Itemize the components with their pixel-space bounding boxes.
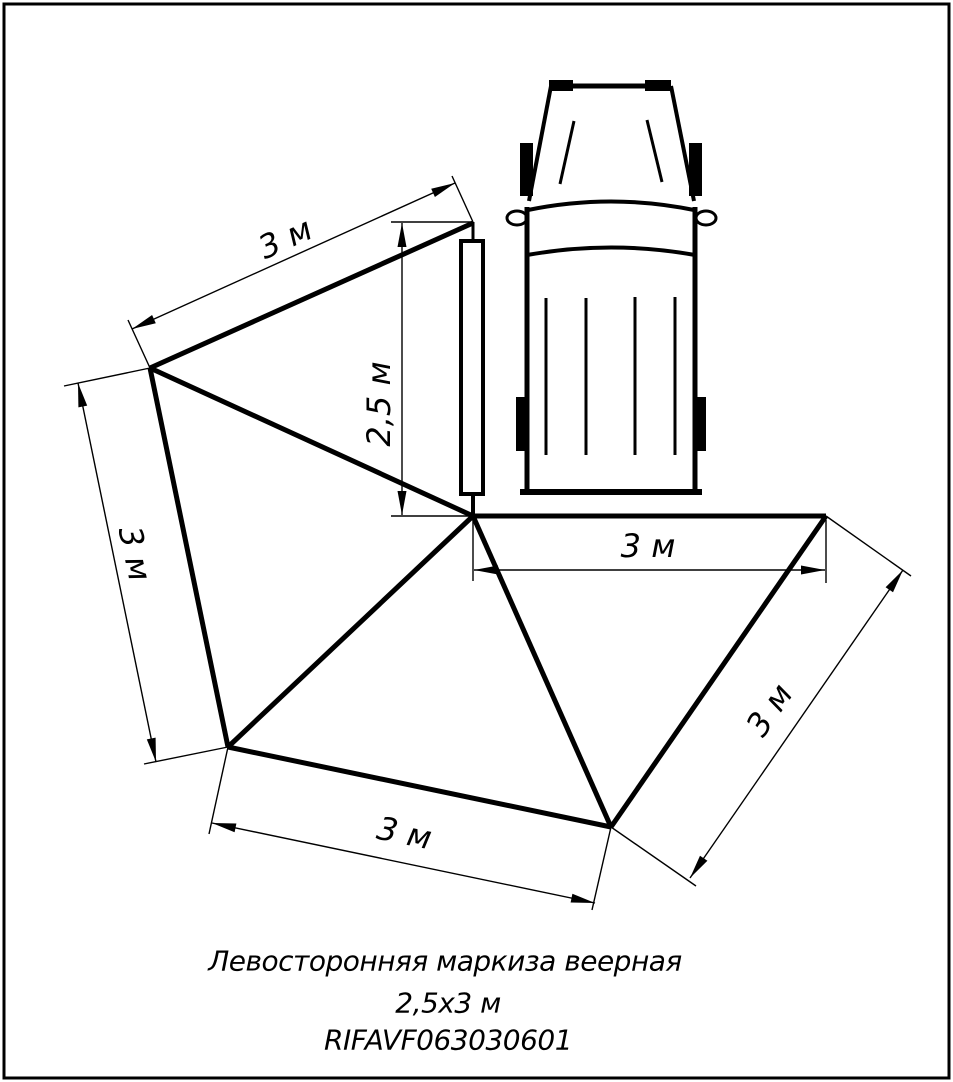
dim-label-bottom: 3 м <box>374 809 435 857</box>
technical-drawing: 3 м3 м3 м3 м3 м2,5 м <box>0 0 953 1082</box>
vehicle-cowl-line <box>527 248 695 256</box>
vehicle-front-wheel-left <box>520 143 533 196</box>
arrowhead <box>147 738 156 762</box>
awning-edge-upperleft-left <box>150 368 228 747</box>
vehicle-mirror-right <box>696 211 716 225</box>
vehicle-front-wheel-right <box>689 143 702 196</box>
vehicle-rear-wheel-right <box>694 397 706 451</box>
vehicle-front-marker-right <box>645 80 671 91</box>
drawing-sheet: { "title": "Левосторонняя маркиза веерна… <box>0 0 953 1082</box>
arrowhead <box>886 570 903 592</box>
caption-size: 2,5х3 м <box>395 987 500 1020</box>
arrowhead <box>690 856 707 878</box>
arrowhead <box>398 223 407 247</box>
dim-label-right: 3 м <box>738 677 800 744</box>
dim-bottom-ext-right <box>592 827 611 910</box>
awning-edge-left-bottom <box>228 747 611 827</box>
dim-label-vertical: 2,5 м <box>360 361 398 446</box>
dim-left-ext-top <box>64 368 150 386</box>
dim-left-ext-bottom <box>144 747 228 764</box>
vehicle-wiper-left <box>560 121 574 184</box>
awning-rail <box>461 241 483 494</box>
dim-label-topleft: 3 м <box>252 210 318 267</box>
awning-rib-bottom-pivot <box>473 516 611 827</box>
arrowhead <box>801 566 825 575</box>
dim-bottom-ext-left <box>209 747 228 834</box>
arrowhead <box>212 823 236 832</box>
dim-right-ext-bottom <box>611 827 696 886</box>
arrowhead <box>474 566 498 575</box>
arrowhead <box>571 894 595 903</box>
awning-rib-left-pivot <box>228 516 473 747</box>
caption-part-number: RIFAVF063030601 <box>324 1024 572 1057</box>
arrowhead <box>398 491 407 515</box>
dim-right-line <box>690 570 903 878</box>
arrowhead <box>78 383 87 407</box>
caption-product-name: Левосторонняя маркиза веерная <box>208 945 682 978</box>
dim-label-horizontal: 3 м <box>621 527 676 565</box>
dim-topleft-ext-apex <box>452 176 473 222</box>
dim-topleft-line <box>132 183 455 329</box>
arrowhead <box>431 183 455 197</box>
vehicle-rear-wheel-left <box>516 397 528 451</box>
vehicle-mirror-left <box>507 211 527 225</box>
dim-right-ext-top <box>826 516 911 576</box>
vehicle-front-marker-left <box>549 80 573 91</box>
vehicle-windshield <box>528 202 694 211</box>
vehicle-wiper-right <box>647 120 662 182</box>
awning-rib-upperleft-pivot <box>150 368 473 516</box>
arrowhead <box>132 315 156 329</box>
